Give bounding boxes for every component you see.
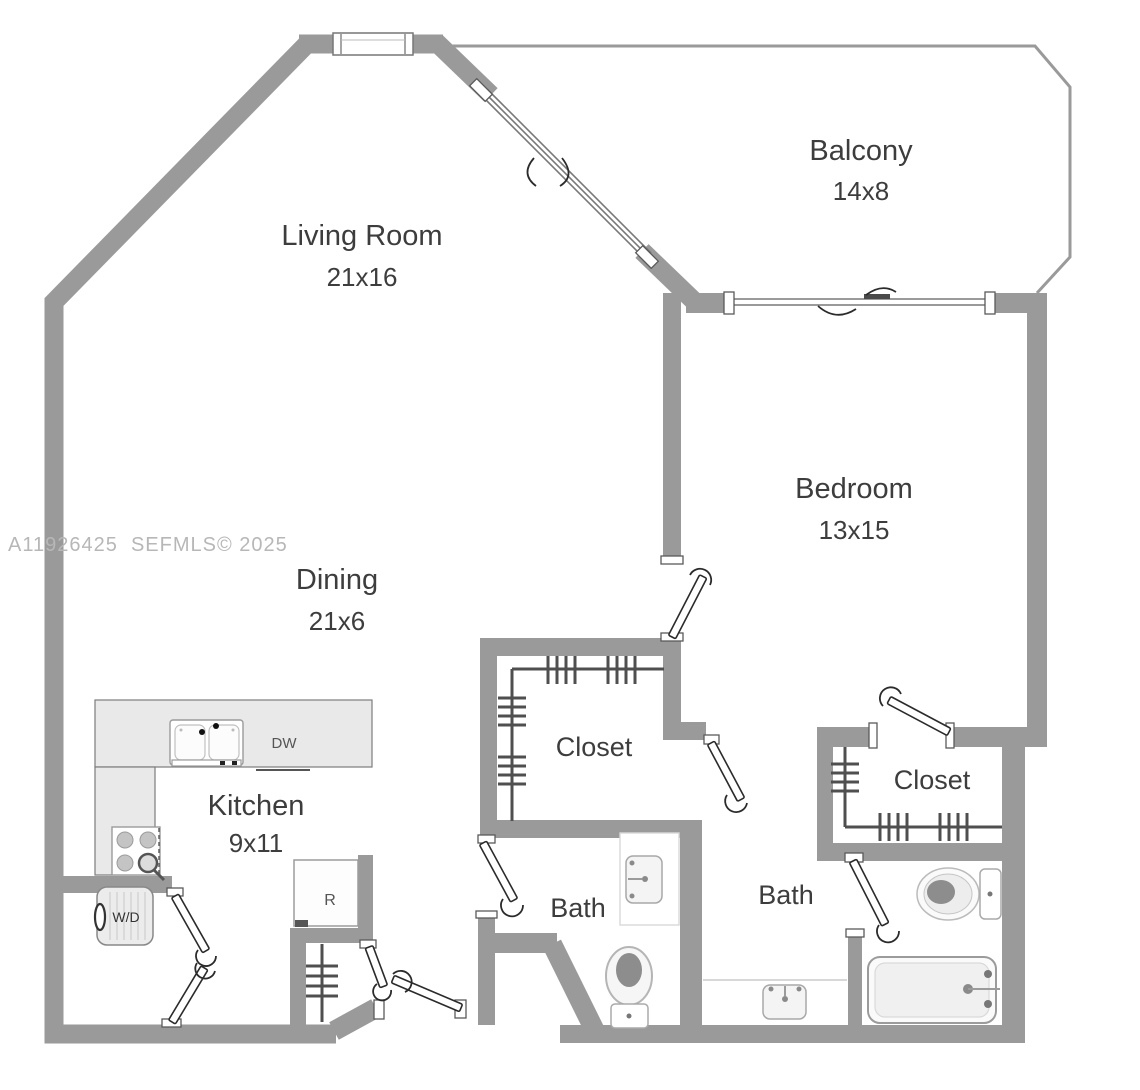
bath-bedroom-toilet [917, 868, 1001, 920]
label-kitchen: Kitchen [208, 790, 305, 822]
wall-coat-closet-left [290, 943, 306, 1025]
label-closet-hall: Closet [556, 732, 633, 762]
room-labels: Living Room 21x16 Balcony 14x8 Bedroom 1… [208, 135, 971, 923]
kitchen-area: W/D R DW [95, 700, 372, 945]
label-kitchen-dims: 9x11 [229, 828, 283, 858]
rail-cap-right [985, 292, 995, 314]
balcony-outline [444, 46, 1070, 293]
label-bath-bedroom: Bath [758, 880, 814, 910]
label-living-room: Living Room [281, 220, 442, 252]
wall-right-lower [1002, 747, 1025, 1043]
wall-closet-hall-step [663, 722, 706, 740]
bath-hall-sink [626, 856, 662, 903]
wall-vestibule-left [478, 917, 495, 1025]
bath-bedroom-sink [763, 985, 806, 1019]
door-entry [391, 971, 462, 1012]
sliding-door-bedroom-balcony [724, 288, 995, 315]
wall-closet-bedroom-top-right [954, 727, 1047, 747]
wall-vestibule-diagonal-left [334, 1008, 376, 1031]
label-balcony: Balcony [809, 135, 913, 167]
door-bath-hall [479, 841, 523, 916]
floor-plan: W/D R DW [0, 0, 1140, 1090]
wall-closet-hall-left [480, 638, 497, 838]
wall-fridge-right [358, 855, 373, 933]
dishwasher-label: DW [272, 735, 298, 752]
stove [112, 827, 164, 880]
bath-hall-fixtures [606, 833, 679, 1028]
refrigerator-label: R [324, 892, 336, 909]
rail-cap-left [724, 292, 734, 314]
wall-bedroom-right [1027, 293, 1047, 747]
wall-bath-bedroom-stub [848, 936, 862, 1025]
label-dining-dims: 21x6 [309, 606, 365, 636]
door-laundry-lower [169, 963, 215, 1024]
label-bedroom: Bedroom [795, 473, 913, 505]
label-dining: Dining [296, 564, 378, 596]
mls-watermark: A11926425 SEFMLS© 2025 [8, 534, 288, 556]
label-bath-hall: Bath [550, 893, 606, 923]
door-closet-hall [707, 741, 747, 812]
floor-plan-canvas: W/D R DW [0, 0, 1140, 1090]
label-closet-bedroom: Closet [894, 765, 971, 795]
refrigerator: R [294, 860, 358, 927]
door-coat-closet [365, 946, 391, 1001]
wall-closet-hall-top [480, 638, 681, 656]
wall-closet-hall-right [663, 656, 681, 723]
kitchen-sink [170, 720, 243, 766]
sliding-door-living-balcony [470, 79, 659, 269]
label-living-room-dims: 21x16 [327, 262, 398, 292]
washer-dryer: W/D [95, 887, 153, 945]
door-laundry-upper [172, 894, 216, 966]
door-bedroom [668, 569, 711, 639]
coat-closet-rod [306, 944, 338, 1022]
wall-between-baths [680, 838, 702, 1025]
label-bedroom-dims: 13x15 [819, 515, 890, 545]
wall-closet-bedroom-left [817, 727, 833, 861]
bathtub [868, 957, 1000, 1023]
label-balcony-dims: 14x8 [833, 176, 889, 206]
wall-vestibule-band [495, 933, 557, 953]
washer-dryer-handle [95, 904, 105, 930]
door-closet-bedroom [880, 687, 951, 735]
wall-bedroom-left [663, 293, 681, 558]
washer-dryer-label: W/D [112, 909, 139, 925]
bath-hall-toilet [606, 947, 652, 1028]
wall-rail-stub-left [686, 293, 727, 313]
window-top [333, 33, 413, 55]
wall-vestibule-diagonal-right [552, 944, 596, 1033]
